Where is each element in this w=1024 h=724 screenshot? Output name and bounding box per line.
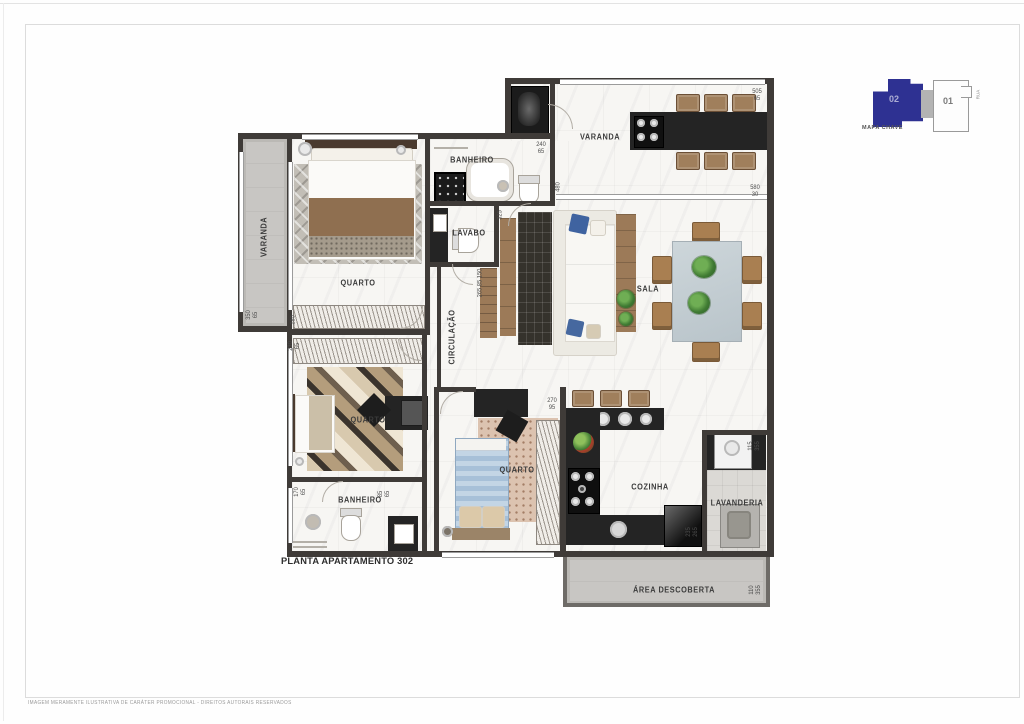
dimension-label: 115 355 <box>747 441 761 451</box>
room-label-circula-o: CIRCULAÇÃO <box>448 310 457 365</box>
dimension-label: 270 95 <box>547 397 557 411</box>
dimension-label: 170 65 <box>293 487 307 497</box>
key-map: 02 01 RUA MAPA CHAVE <box>855 70 1005 140</box>
room-label-banheiro: BANHEIRO <box>450 156 494 165</box>
key-map-unit-01-notch <box>961 86 972 98</box>
room-label-banheiro: BANHEIRO <box>338 496 382 505</box>
room-label-quarto: QUARTO <box>499 466 534 475</box>
dimension-label: 240 65 <box>536 141 546 155</box>
key-map-unit-02-label: 02 <box>889 94 899 104</box>
floorplan-page: VARANDAQUARTOBANHEIROLAVABOVARANDASALACI… <box>0 0 1024 724</box>
key-map-unit-01-label: 01 <box>943 96 953 106</box>
room-label-varanda: VARANDA <box>260 217 269 257</box>
room-label-sala: SALA <box>637 285 659 294</box>
dimension-label: 480 <box>554 182 561 192</box>
dimension-label: 265 85 150 <box>476 269 483 298</box>
disclaimer-text: IMAGEM MERAMENTE ILUSTRATIVA DE CARÁTER … <box>28 700 292 706</box>
key-map-title: MAPA CHAVE <box>862 125 903 131</box>
room-label-varanda: VARANDA <box>580 133 620 142</box>
dimension-label: 230 65 <box>287 341 301 351</box>
dimension-label: 580 30 <box>750 184 760 198</box>
room-label-lavanderia: LAVANDERIA <box>711 499 764 508</box>
plan-title: PLANTA APARTAMENTO 302 <box>281 556 413 567</box>
key-map-street-label: RUA <box>975 90 980 100</box>
dimension-label: 85 65 <box>377 491 391 497</box>
dimension-label: 350 65 <box>245 310 259 320</box>
key-map-core <box>921 90 933 118</box>
dimension-label: 505 65 <box>752 88 762 102</box>
room-label-lavabo: LAVABO <box>452 229 485 238</box>
room-label-cozinha: COZINHA <box>631 483 668 492</box>
dimension-label: 110 355 <box>748 585 762 595</box>
dimension-label: 235 265 <box>685 527 699 537</box>
room-label-quarto: QUARTO <box>350 416 385 425</box>
dimension-label: 280 <box>289 315 296 325</box>
room-label-quarto: QUARTO <box>340 279 375 288</box>
dimension-label: 325 <box>496 210 503 220</box>
room-label--rea-descoberta: ÁREA DESCOBERTA <box>633 586 715 595</box>
